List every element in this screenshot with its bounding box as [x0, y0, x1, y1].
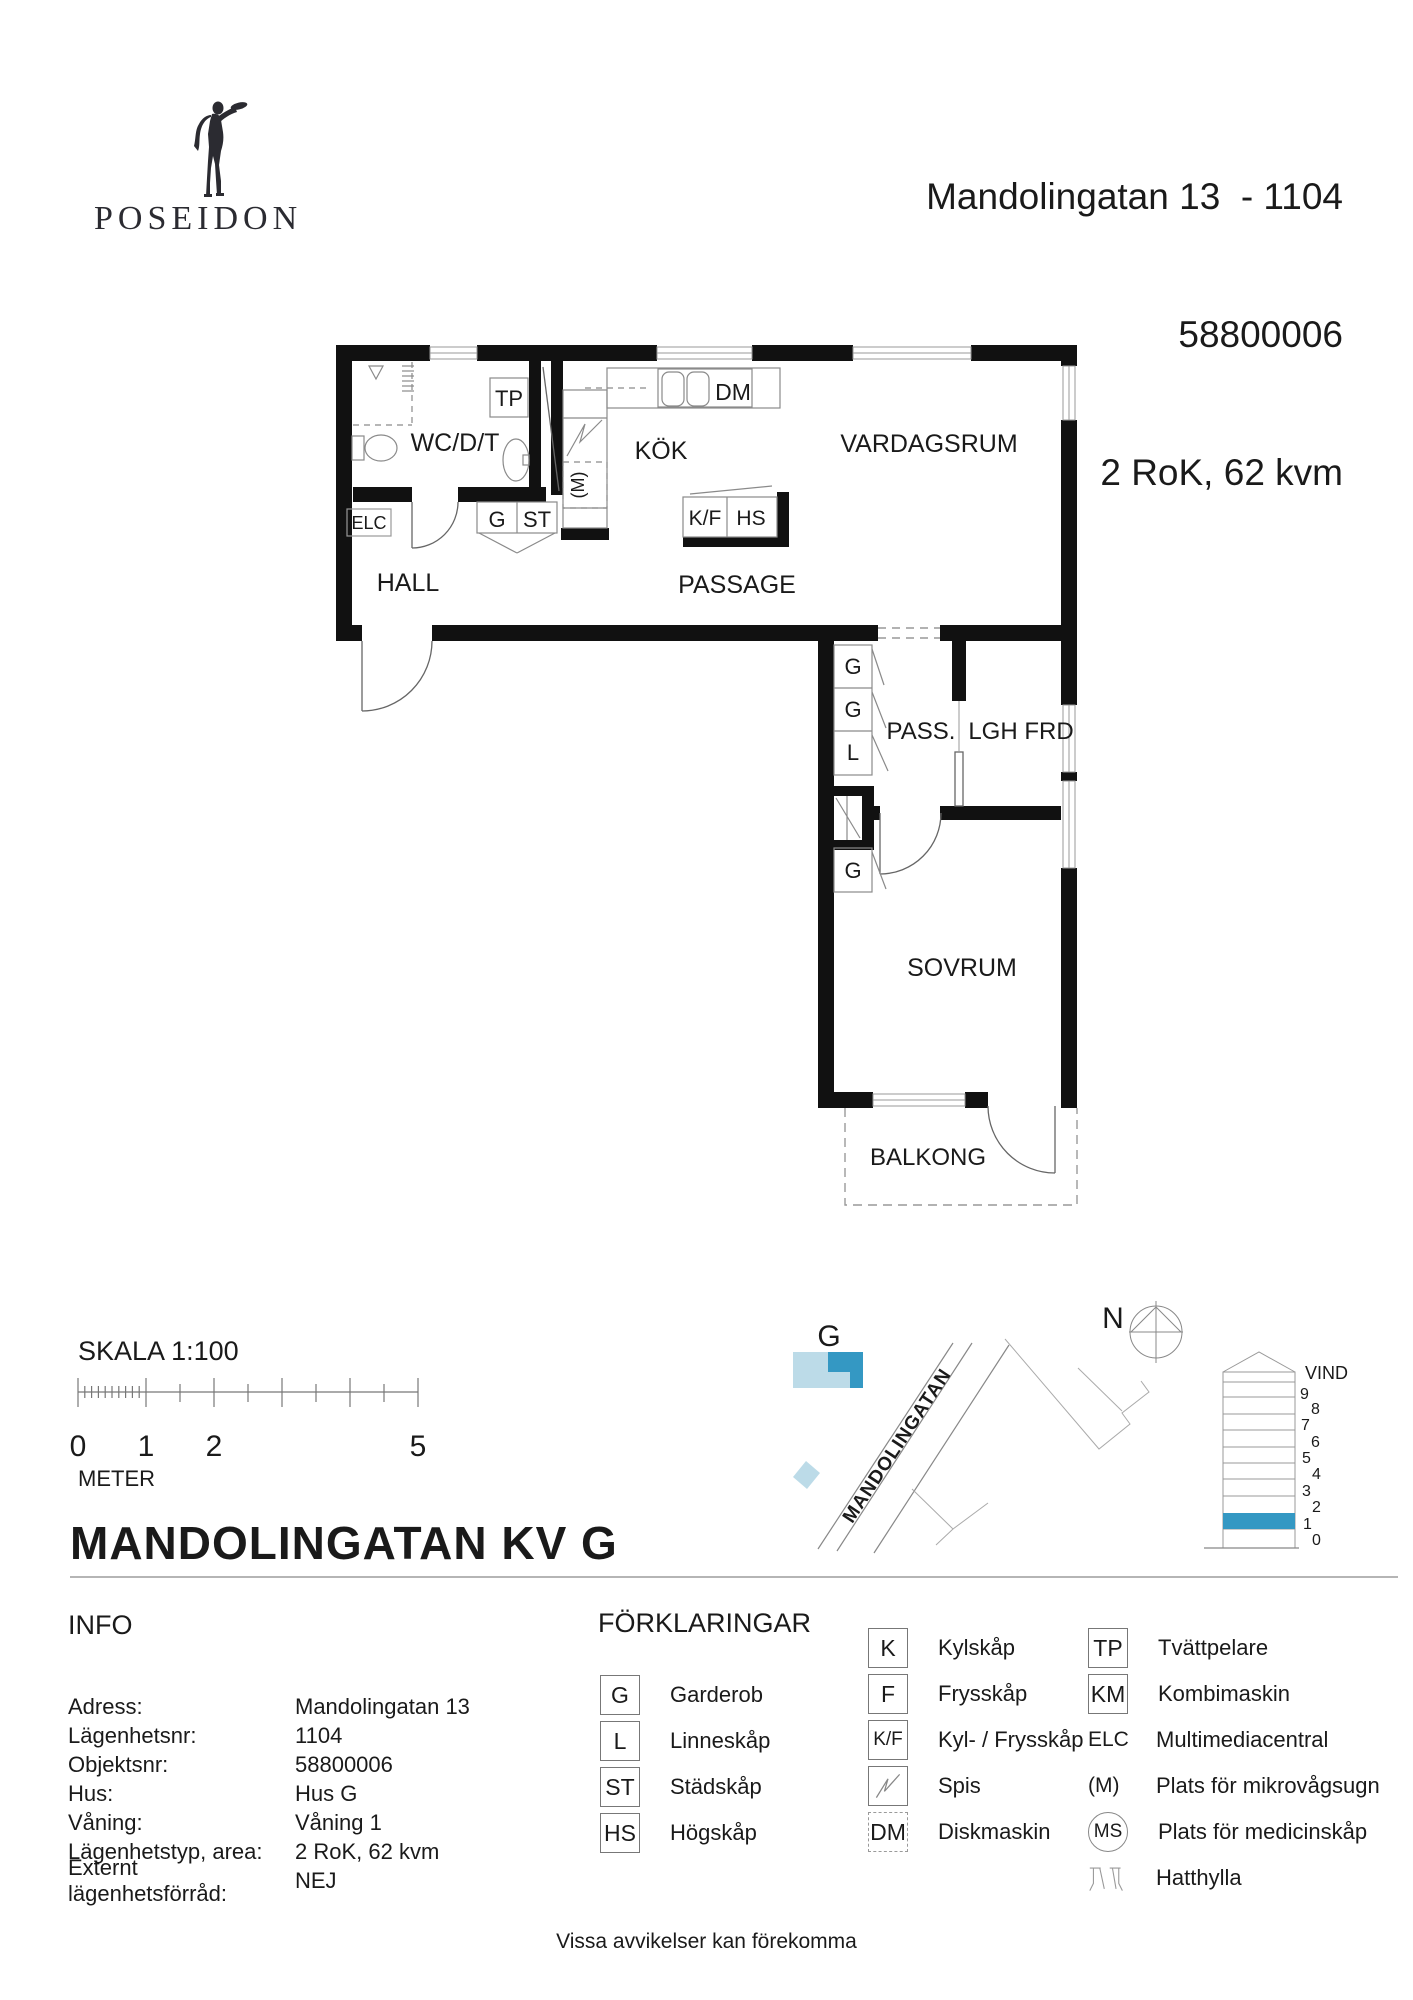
legend-row-hogskap: HS Högskåp [600, 1813, 770, 1853]
floor-number-7: 7 [1301, 1417, 1310, 1434]
legend-label: Garderob [670, 1682, 763, 1708]
site-building-label: G [817, 1320, 840, 1353]
fixture-label-kf: K/F [689, 507, 722, 530]
legend-label: Frysskåp [938, 1681, 1027, 1707]
legend-label: Städskåp [670, 1774, 762, 1800]
scale-bar: SKALA 1:100 0 1 2 5 METER [70, 1336, 427, 1491]
floor-number-6: 6 [1311, 1434, 1320, 1451]
info-value: 2 RoK, 62 kvm [295, 1839, 439, 1865]
site-street-name: MANDOLINGATAN [839, 1365, 956, 1527]
legend-row-medicinskap: MS Plats för medicinskåp [1088, 1812, 1380, 1852]
room-label-wc: WC/D/T [411, 429, 500, 457]
info-row-lagenhetsnr: Lägenhetsnr: 1104 [68, 1721, 470, 1750]
hatthylla-icon [1088, 1859, 1126, 1897]
scale-tick-0: 0 [70, 1430, 87, 1463]
room-label-balkong: BALKONG [870, 1144, 986, 1171]
legend-row-linneskap: L Linneskåp [600, 1721, 770, 1761]
info-row-hus: Hus: Hus G [68, 1779, 470, 1808]
legend-label: Tvättpelare [1158, 1635, 1268, 1661]
legend-row-kylskap: K Kylskåp [868, 1628, 1083, 1668]
elc-symbol: ELC [1088, 1721, 1134, 1759]
building-elevation: VIND 9 8 7 6 5 4 3 2 1 0 [1204, 1352, 1348, 1549]
legend-row-mikrovagsugn: (M) Plats för mikrovågsugn [1088, 1766, 1380, 1806]
medicinskap-symbol: MS [1088, 1812, 1128, 1852]
info-row-vaning: Våning: Våning 1 [68, 1808, 470, 1837]
floor-number-9: 9 [1300, 1386, 1309, 1403]
divider-line [70, 1576, 1398, 1578]
info-heading: INFO [68, 1610, 133, 1641]
floor-number-2: 2 [1312, 1499, 1321, 1516]
legend-row-hatthylla: Hatthylla [1088, 1858, 1380, 1898]
site-map: G MANDOLINGATAN [793, 1320, 1149, 1553]
floor-number-5: 5 [1302, 1450, 1311, 1467]
compass-north-label: N [1102, 1302, 1124, 1335]
info-table: Adress: Mandolingatan 13 Lägenhetsnr: 11… [68, 1692, 470, 1895]
frysskap-symbol: F [868, 1674, 908, 1714]
legend-row-multimediacentral: ELC Multimediacentral [1088, 1720, 1380, 1760]
room-label-hall: HALL [377, 569, 440, 597]
scale-title: SKALA 1:100 [78, 1336, 239, 1366]
legend-label: Högskåp [670, 1820, 757, 1846]
floor-plan: WC/D/T HALL KÖK VARDAGSRUM PASSAGE PASS.… [336, 345, 1077, 1205]
legend-row-garderob: G Garderob [600, 1675, 770, 1715]
legend-label: Plats för mikrovågsugn [1156, 1773, 1380, 1799]
legend-row-kyl-frysskap: K/F Kyl- / Frysskåp [868, 1720, 1083, 1760]
cased-opening [878, 628, 940, 638]
sheet-title: MANDOLINGATAN KV G [70, 1516, 618, 1570]
linneskap-symbol: L [600, 1721, 640, 1761]
scale-tick-5: 5 [410, 1430, 427, 1463]
fixture-label-g3: G [844, 858, 861, 883]
info-value: 1104 [295, 1723, 342, 1749]
legend-label: Spis [938, 1773, 981, 1799]
info-label: Adress: [68, 1694, 295, 1720]
info-value: NEJ [295, 1868, 337, 1894]
info-value: Våning 1 [295, 1810, 382, 1836]
scale-tick-1: 1 [138, 1430, 155, 1463]
info-label: Våning: [68, 1810, 295, 1836]
info-value: 58800006 [295, 1752, 393, 1778]
legend-column-3: TP Tvättpelare KM Kombimaskin ELC Multim… [1088, 1628, 1380, 1904]
info-label: Externt lägenhetsförråd: [68, 1855, 295, 1907]
floorplan-sheet: { "brand": { "name": "POSEIDON" }, "head… [0, 0, 1413, 2000]
legend-row-tvattpelare: TP Tvättpelare [1088, 1628, 1380, 1668]
kyl-frysskap-symbol: K/F [868, 1720, 908, 1760]
tvattpelare-symbol: TP [1088, 1628, 1128, 1668]
legend-label: Linneskåp [670, 1728, 770, 1754]
legend-heading: FÖRKLARINGAR [598, 1608, 811, 1639]
fixture-label-m: (M) [568, 472, 588, 499]
north-compass-icon [1129, 1301, 1183, 1363]
legend-label: Kyl- / Frysskåp [938, 1727, 1083, 1753]
room-label-passage: PASSAGE [678, 571, 796, 599]
info-value: Hus G [295, 1781, 357, 1807]
hogskap-symbol: HS [600, 1813, 640, 1853]
legend-label: Plats för medicinskåp [1158, 1819, 1367, 1845]
legend-label: Kombimaskin [1158, 1681, 1290, 1707]
legend-row-stadskap: ST Städskåp [600, 1767, 770, 1807]
fixture-label-g-hall: G [488, 507, 505, 532]
elevation-attic-label: VIND [1305, 1363, 1348, 1383]
info-row-objektsnr: Objektsnr: 58800006 [68, 1750, 470, 1779]
garderob-symbol: G [600, 1675, 640, 1715]
info-label: Lägenhetsnr: [68, 1723, 295, 1749]
legend-label: Multimediacentral [1156, 1727, 1328, 1753]
scale-tick-2: 2 [206, 1430, 223, 1463]
fixture-label-hs: HS [736, 507, 765, 530]
spis-icon [868, 1766, 908, 1806]
info-value: Mandolingatan 13 [295, 1694, 470, 1720]
legend-column-2: K Kylskåp F Frysskåp K/F Kyl- / Frysskåp… [868, 1628, 1083, 1858]
scale-unit: METER [78, 1466, 155, 1491]
walls [336, 345, 1077, 1108]
elevation-highlighted-floor [1223, 1513, 1295, 1529]
info-label: Objektsnr: [68, 1752, 295, 1778]
info-label: Hus: [68, 1781, 295, 1807]
room-label-vardagsrum: VARDAGSRUM [840, 430, 1017, 458]
legend-label: Diskmaskin [938, 1819, 1050, 1845]
legend-row-frysskap: F Frysskåp [868, 1674, 1083, 1714]
floor-number-8: 8 [1311, 1401, 1320, 1418]
floor-number-3: 3 [1302, 1483, 1311, 1500]
site-context-buildings [912, 1339, 1149, 1545]
fixture-label-dm: DM [715, 379, 751, 405]
kombimaskin-symbol: KM [1088, 1674, 1128, 1714]
site-small-building [793, 1461, 820, 1489]
floor-number-1: 1 [1303, 1516, 1312, 1533]
footer-disclaimer: Vissa avvikelser kan förekomma [0, 1930, 1413, 1954]
room-label-pass: PASS. [887, 718, 956, 745]
legend-row-spis: Spis [868, 1766, 1083, 1806]
legend-label: Kylskåp [938, 1635, 1015, 1661]
fixture-label-g1: G [844, 654, 861, 679]
fixture-label-g2: G [844, 697, 861, 722]
fixture-label-st: ST [523, 507, 551, 532]
room-label-sovrum: SOVRUM [907, 954, 1017, 982]
info-row-externt-forrad: Externt lägenhetsförråd: NEJ [68, 1866, 470, 1895]
elevation-floor-numbers: 9 8 7 6 5 4 3 2 1 0 [1300, 1386, 1321, 1549]
stadskap-symbol: ST [600, 1767, 640, 1807]
fixture-label-tp: TP [495, 386, 523, 411]
diskmaskin-symbol: DM [868, 1812, 908, 1852]
floor-number-4: 4 [1312, 1466, 1321, 1483]
room-label-lgh-frd: LGH FRD [968, 718, 1073, 745]
floor-number-0: 0 [1312, 1532, 1321, 1549]
legend-column-1: G Garderob L Linneskåp ST Städskåp HS Hö… [600, 1675, 770, 1859]
mikrovagsugn-symbol: (M) [1088, 1767, 1134, 1805]
kylskap-symbol: K [868, 1628, 908, 1668]
legend-row-diskmaskin: DM Diskmaskin [868, 1812, 1083, 1852]
legend-label: Hatthylla [1156, 1865, 1242, 1891]
room-label-kok: KÖK [635, 437, 688, 465]
fixture-label-elc: ELC [351, 513, 386, 533]
info-row-adress: Adress: Mandolingatan 13 [68, 1692, 470, 1721]
fixture-label-l: L [847, 740, 859, 765]
legend-row-kombimaskin: KM Kombimaskin [1088, 1674, 1380, 1714]
